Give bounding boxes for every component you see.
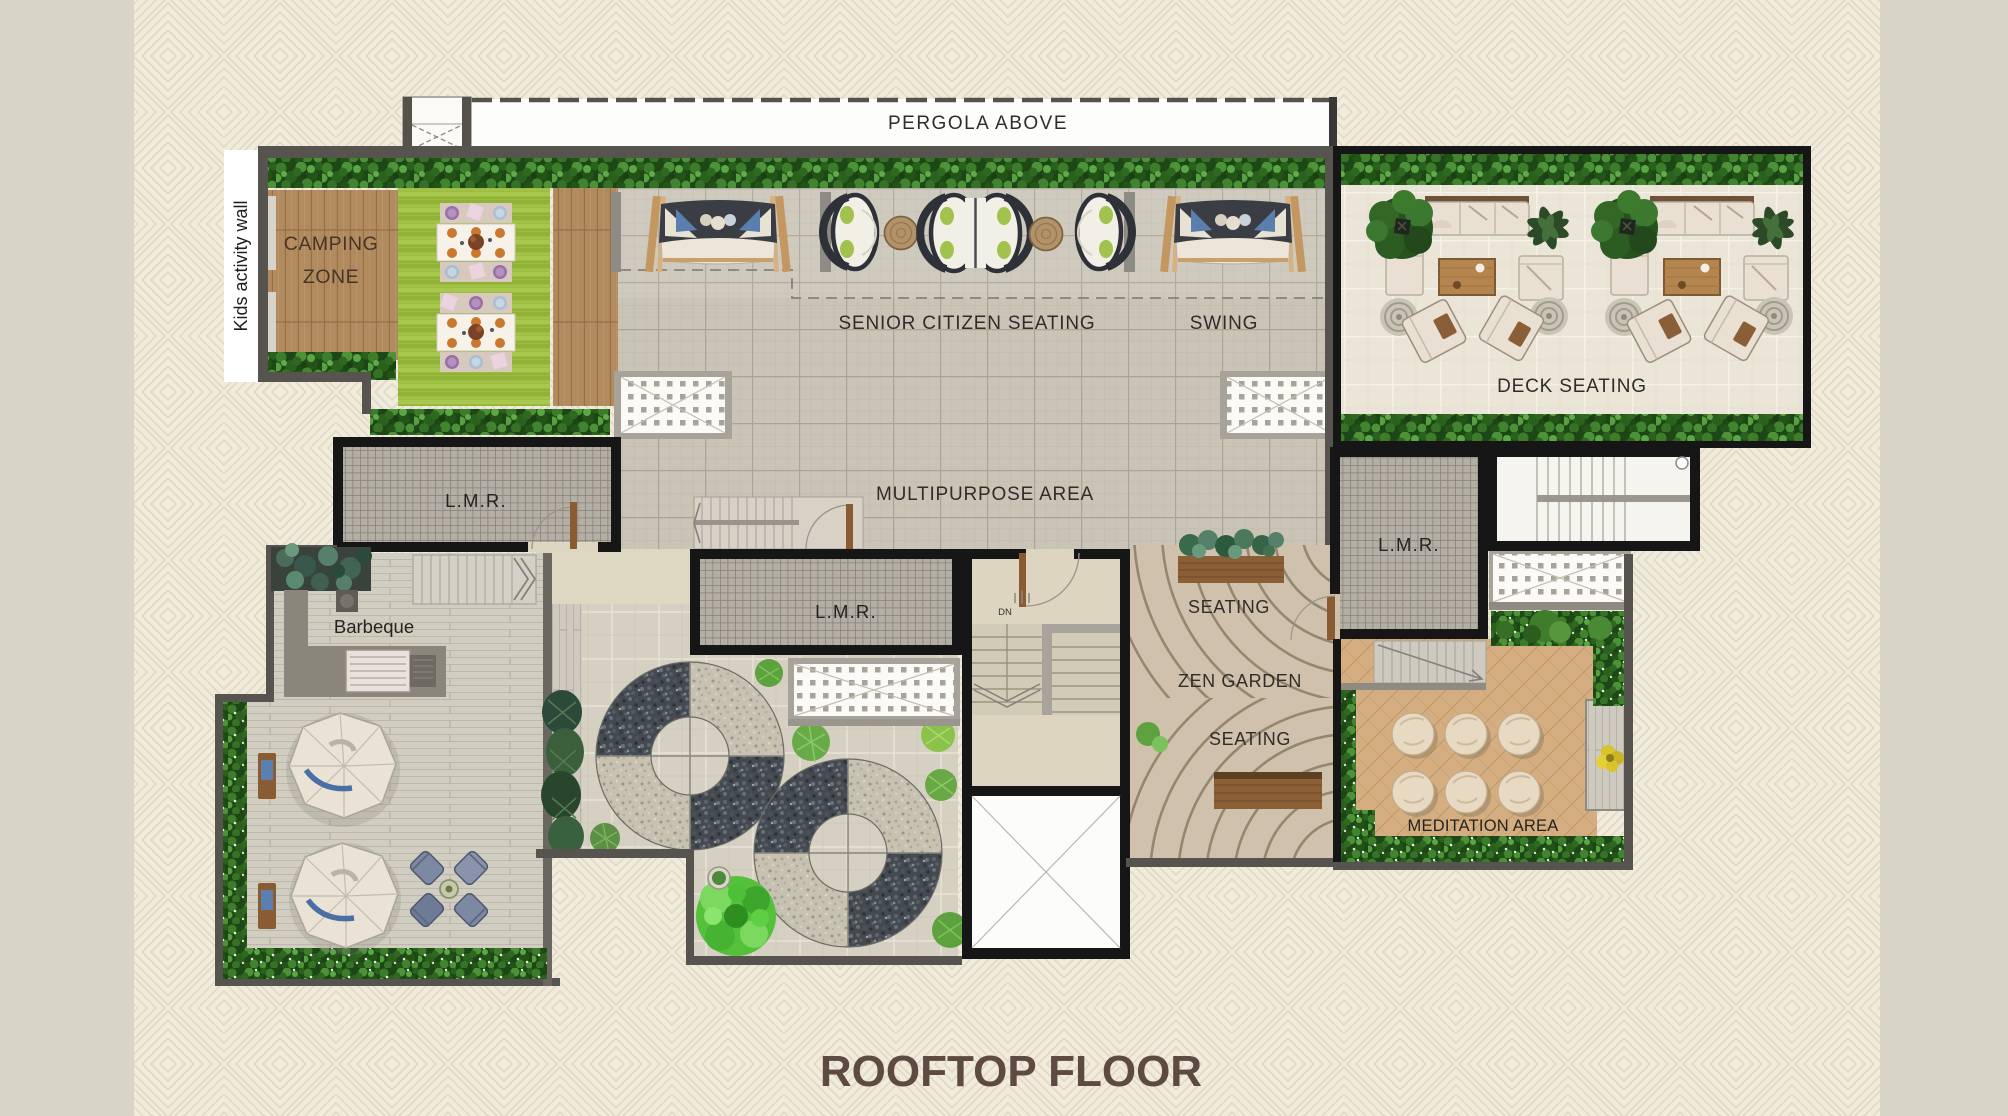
svg-text:MEDITATION AREA: MEDITATION AREA <box>1408 817 1559 835</box>
svg-text:Kids activity wall: Kids activity wall <box>231 200 251 331</box>
svg-text:ROOFTOP FLOOR: ROOFTOP FLOOR <box>820 1047 1202 1096</box>
svg-text:MULTIPURPOSE AREA: MULTIPURPOSE AREA <box>876 484 1094 505</box>
svg-text:SEATING: SEATING <box>1188 597 1270 617</box>
svg-text:PERGOLA ABOVE: PERGOLA ABOVE <box>888 113 1068 134</box>
svg-text:DECK SEATING: DECK SEATING <box>1497 376 1647 397</box>
svg-text:L.M.R.: L.M.R. <box>445 490 507 511</box>
svg-text:Barbeque: Barbeque <box>334 616 414 637</box>
svg-text:SENIOR CITIZEN SEATING: SENIOR CITIZEN SEATING <box>839 313 1096 334</box>
svg-text:ZONE: ZONE <box>303 266 359 288</box>
svg-text:SWING: SWING <box>1190 313 1258 334</box>
svg-text:L.M.R.: L.M.R. <box>1378 534 1440 555</box>
svg-text:L.M.R.: L.M.R. <box>815 601 877 622</box>
svg-text:ZEN GARDEN: ZEN GARDEN <box>1178 671 1302 691</box>
svg-text:SEATING: SEATING <box>1209 729 1291 749</box>
svg-text:CAMPING: CAMPING <box>284 233 379 255</box>
svg-text:DN: DN <box>998 607 1012 618</box>
